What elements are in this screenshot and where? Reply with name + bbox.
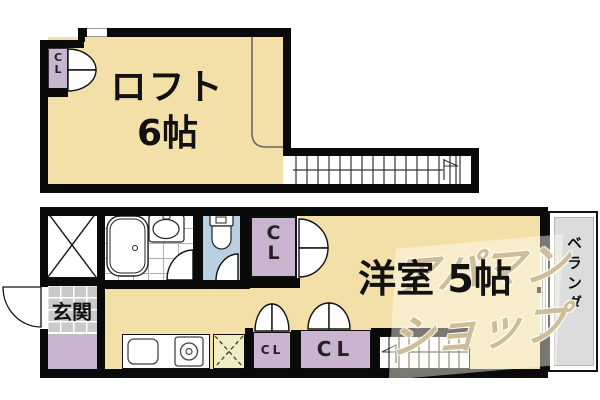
loft-window — [87, 28, 107, 37]
loft-wall-left — [40, 40, 48, 193]
wall-bath-toilet — [193, 213, 203, 282]
closet-small-door-icon — [253, 302, 291, 333]
toilet-door-icon — [216, 254, 238, 281]
washbasin-icon — [153, 220, 179, 239]
wall-under-washer — [40, 277, 97, 286]
upper-stairs-wall-right — [471, 148, 479, 193]
floorplan-canvas: C L ロフト 6帖 — [0, 0, 600, 400]
loft-railing-line — [248, 35, 288, 151]
kitchen-fixtures — [122, 334, 210, 369]
upper-stairs-wall-top — [283, 148, 479, 156]
wall-under-bath — [97, 280, 250, 289]
shoe-cabinet — [47, 332, 97, 369]
toilet-fixtures — [203, 213, 240, 282]
wall-entrance-kitchen — [97, 278, 105, 378]
loft-closet-label: C L — [54, 51, 62, 76]
washer-space-x-icon — [47, 212, 97, 278]
wall-washer-bath — [97, 213, 105, 278]
refrigerator-x-icon — [213, 334, 245, 369]
entrance-label: 玄関 — [47, 296, 97, 325]
main-wall-top — [40, 207, 548, 216]
loft-size-label: 6帖 — [85, 104, 250, 156]
entrance-door-icon — [2, 285, 44, 330]
wall-closet-separator — [291, 330, 300, 378]
closet-top-label: C L — [266, 224, 282, 264]
closet-small-label: CL — [261, 343, 283, 357]
wall-toilet-closet — [240, 213, 250, 282]
loft-closet-wall-stub — [48, 88, 68, 97]
closet-large-door-icon — [306, 301, 352, 331]
bathroom-fixtures — [103, 213, 193, 280]
upper-stairs-treads — [291, 156, 471, 184]
closet-large-label: CL — [317, 337, 354, 361]
loft-closet: C L — [48, 48, 68, 89]
wall-under-closet-top — [250, 278, 300, 288]
loft-wall-right — [283, 28, 291, 156]
closet-small: CL — [253, 332, 291, 369]
toilet-bowl-icon — [212, 226, 231, 249]
main-room-label: 洋室 5帖 — [330, 248, 540, 303]
closet-top: C L — [250, 216, 297, 278]
loft-room-label: ロフト — [85, 58, 250, 110]
bathroom-door-icon — [167, 250, 193, 280]
closet-large: CL — [300, 330, 371, 369]
loft-wall-top — [84, 28, 291, 37]
wall-fridge-closet — [245, 328, 253, 378]
sink-icon — [128, 339, 158, 364]
closet-top-door-icon — [297, 217, 330, 278]
bathtub-icon — [107, 216, 148, 276]
loft-wall-bottom — [40, 184, 479, 193]
stove-icon — [175, 337, 203, 366]
